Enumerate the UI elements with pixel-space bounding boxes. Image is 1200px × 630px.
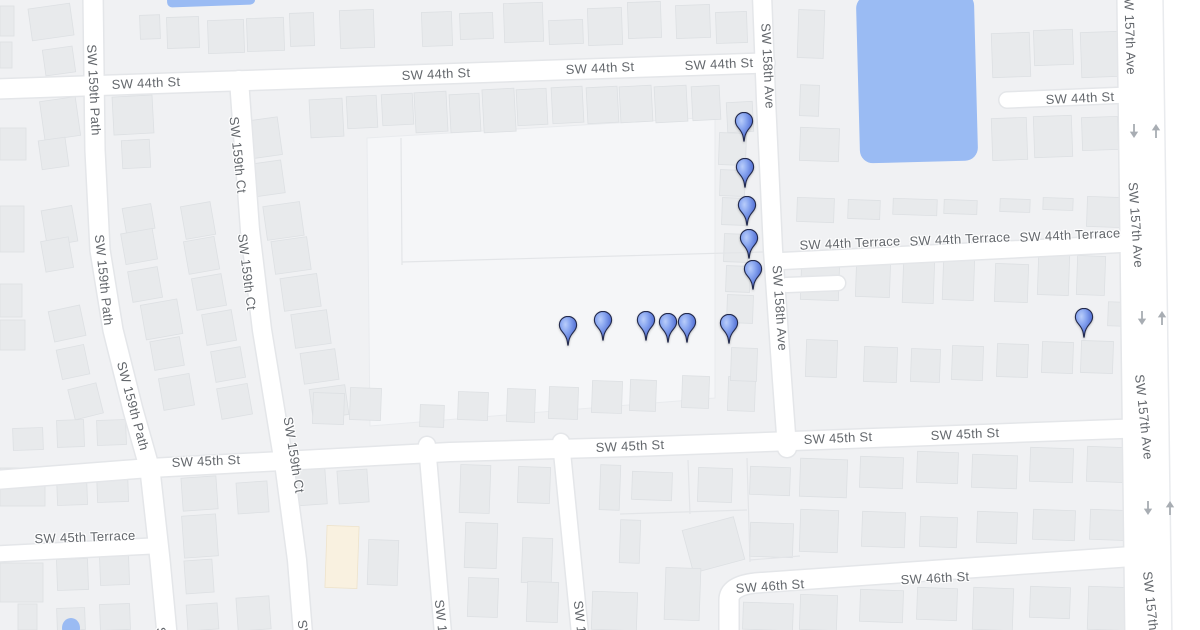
map-pin[interactable] [735,157,755,189]
map-pin[interactable] [658,312,678,344]
map-pin[interactable] [677,312,697,344]
map-pin[interactable] [636,310,656,342]
map-pin[interactable] [593,310,613,342]
map-pin[interactable] [558,315,578,347]
map-pin[interactable] [743,259,763,291]
map-pin[interactable] [1074,307,1094,339]
map-pin[interactable] [739,228,759,260]
map-markers-layer [0,0,1200,630]
map-pin[interactable] [737,195,757,227]
map-canvas[interactable]: SW 44th StSW 44th StSW 44th StSW 44th St… [0,0,1200,630]
map-pin[interactable] [719,313,739,345]
map-pin[interactable] [734,111,754,143]
